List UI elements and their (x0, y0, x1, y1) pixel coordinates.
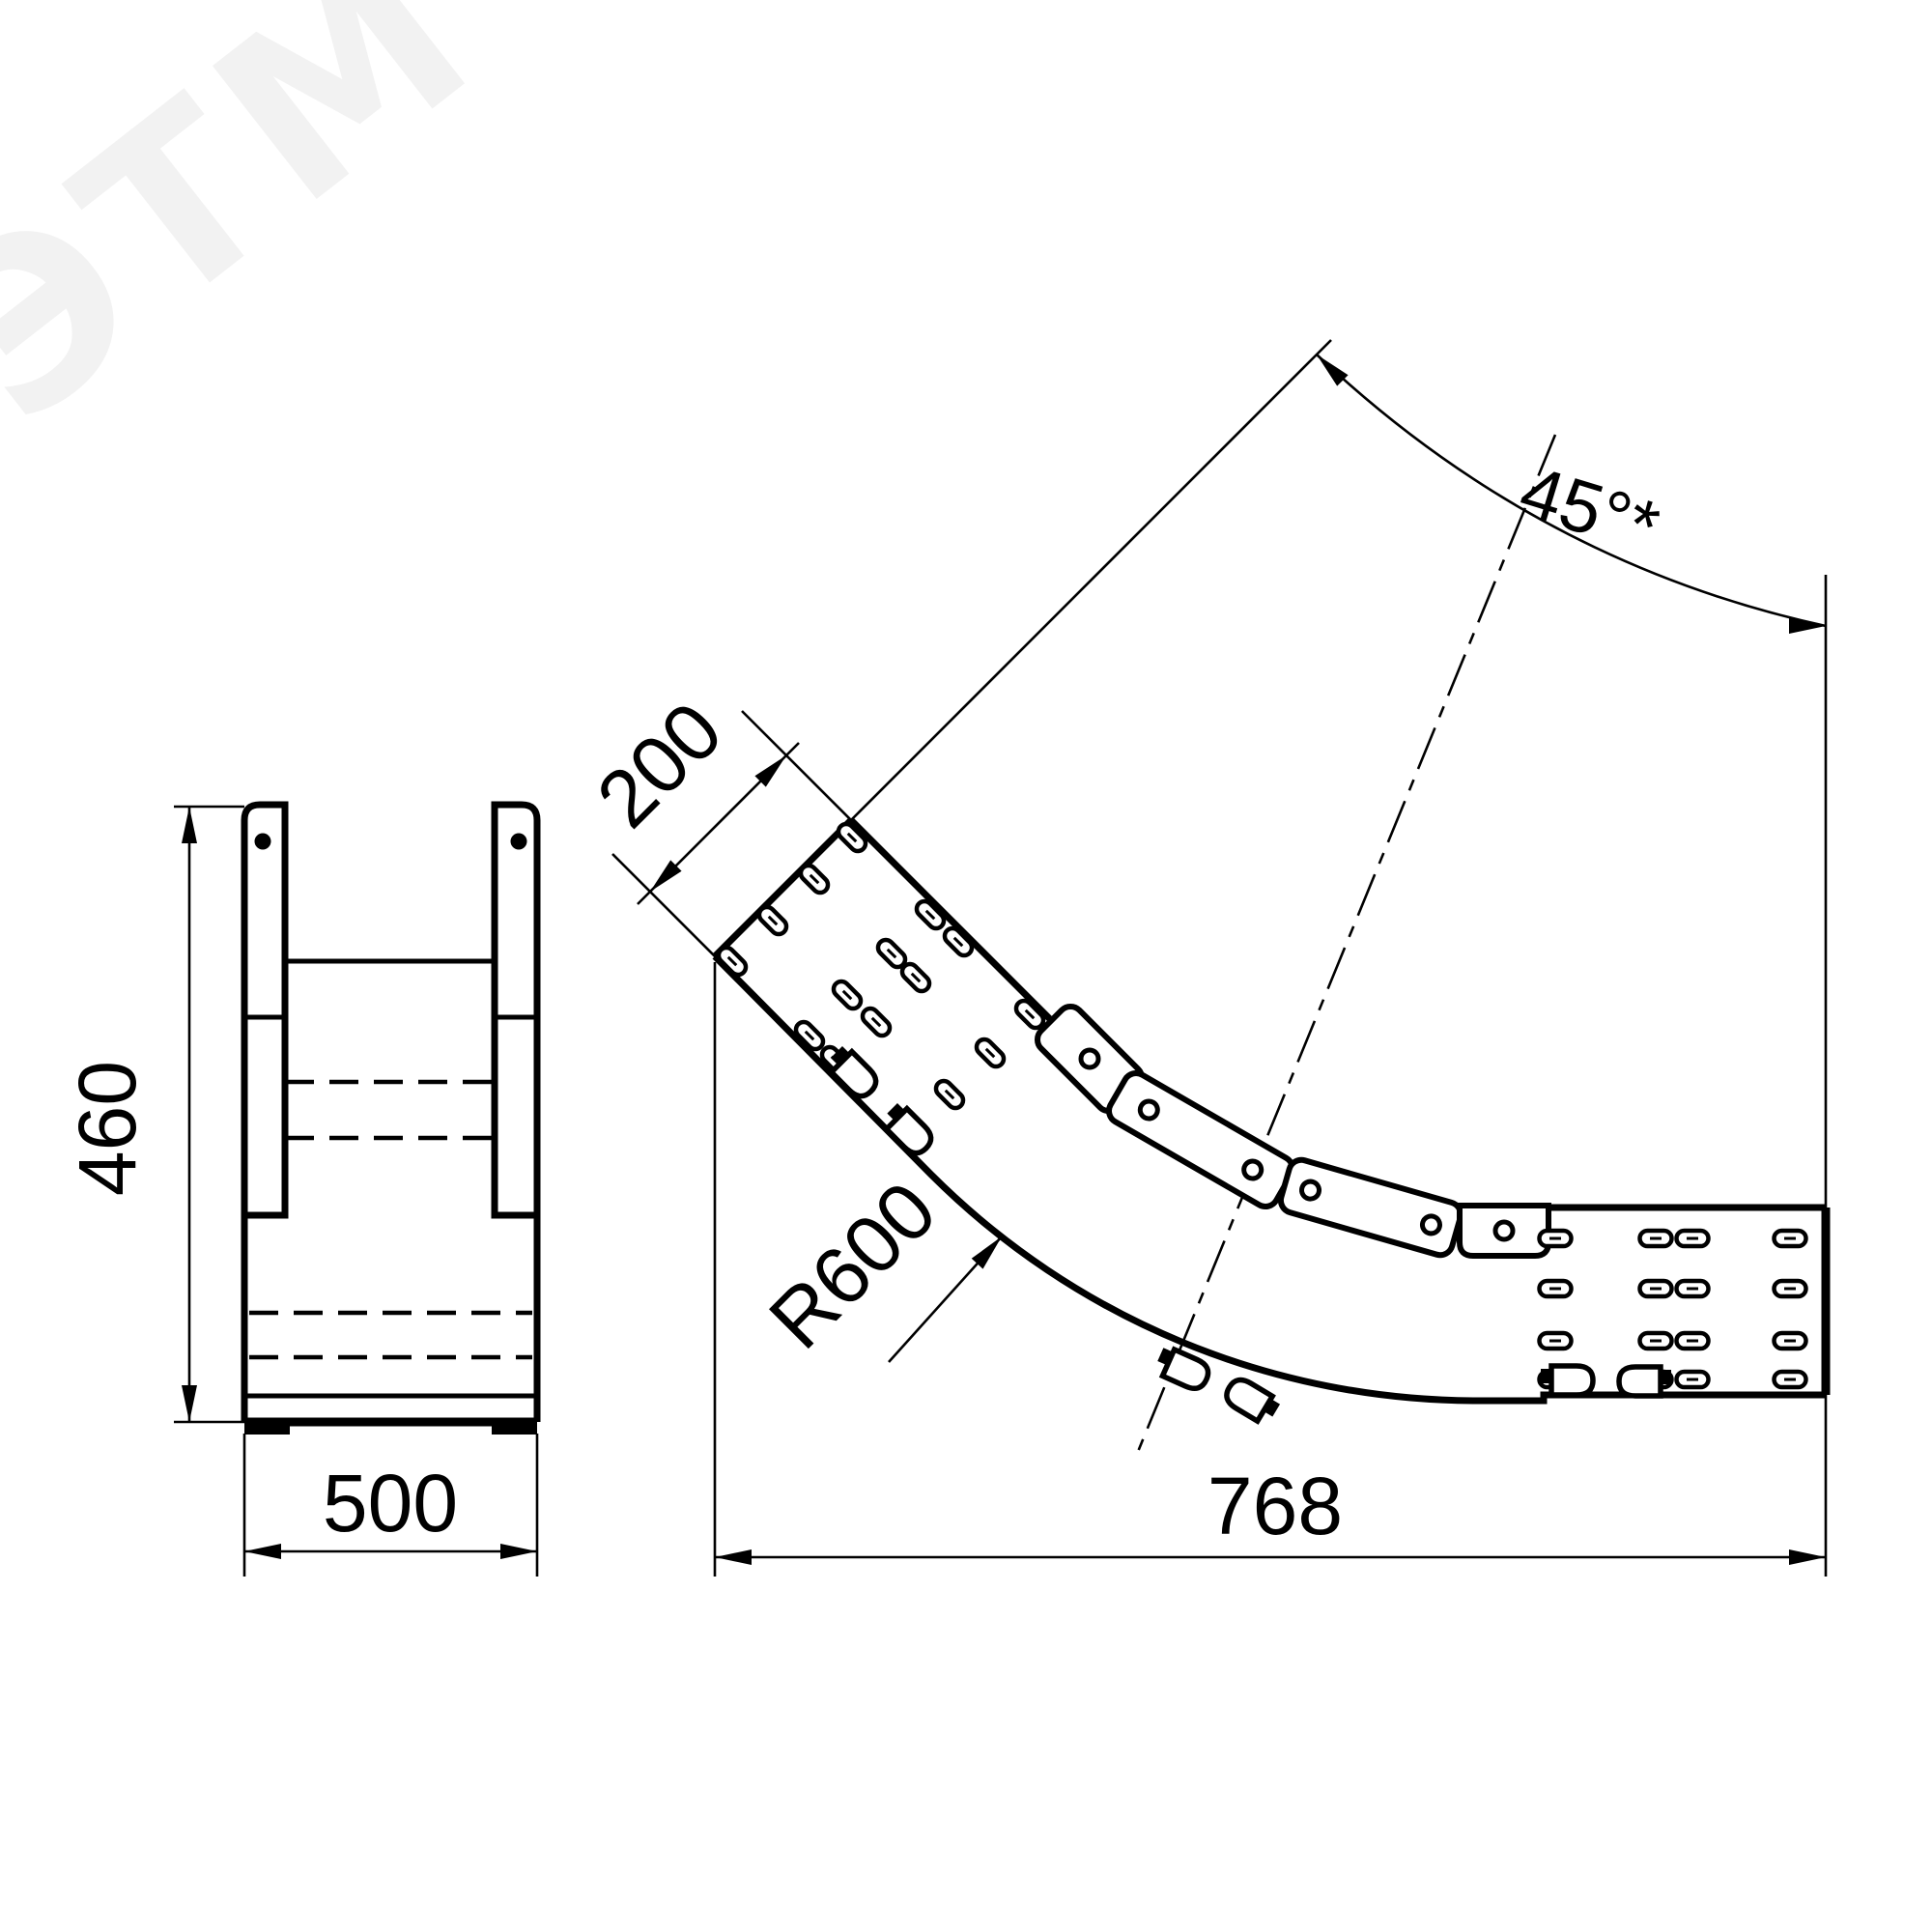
bend-plan-view (715, 435, 1826, 1459)
slot-hole (831, 979, 865, 1012)
right-rail (495, 805, 537, 1215)
dim-height-460: 460 (62, 807, 244, 1422)
arrowhead (500, 1544, 537, 1559)
clamp-body (1162, 1350, 1211, 1393)
slot-hole (1775, 1372, 1806, 1387)
left-rail (244, 805, 285, 1215)
cable-clamp (1222, 1375, 1282, 1427)
slot-hole (860, 1006, 894, 1039)
dim-length-label: 768 (1207, 1461, 1343, 1551)
front-view (244, 805, 537, 1435)
dim-radius-label: R600 (752, 1164, 952, 1365)
dim-angle-45: 45°* (851, 340, 1826, 1207)
watermark-text: ЭТМ (0, 0, 526, 474)
slot-hole (899, 961, 933, 995)
plate-hole (1420, 1214, 1441, 1236)
slot-hole (1540, 1281, 1572, 1296)
extension-line (612, 854, 746, 987)
clamp-body (1551, 1366, 1593, 1395)
plate-outline (1104, 1068, 1296, 1210)
dim-width-label: 500 (323, 1458, 458, 1548)
plate-outline (1278, 1157, 1463, 1259)
right-rail-hole (511, 834, 527, 850)
slot-hole (756, 904, 790, 938)
slot-group-diagonal-arm (716, 821, 1047, 1153)
inner-edge (851, 820, 1826, 1207)
slot-hole (1640, 1281, 1672, 1296)
drawing-page: ЭТМ 460 (0, 0, 1932, 1932)
slot-hole (1013, 998, 1047, 1032)
arm-end-edge (715, 820, 851, 956)
technical-drawing-canvas: ЭТМ 460 (0, 0, 1932, 1932)
slot-hole (793, 1019, 827, 1053)
dim-width-500: 500 (244, 1434, 537, 1577)
watermark: ЭТМ (0, 0, 526, 474)
arrowhead (182, 807, 197, 843)
slot-hole (1640, 1333, 1672, 1349)
slot-hole (836, 821, 869, 855)
slot-hole (1677, 1333, 1709, 1349)
cable-clamp (879, 1101, 936, 1158)
slot-hole (1775, 1281, 1806, 1296)
dim-radius-R600: R600 (752, 1164, 1002, 1365)
slot-hole (914, 898, 948, 932)
slot-hole (1677, 1231, 1709, 1246)
slot-hole (1775, 1231, 1806, 1246)
slot-hole (1677, 1281, 1709, 1296)
slot-hole (1540, 1231, 1572, 1246)
left-foot-tab (244, 1426, 290, 1435)
slot-hole (933, 1078, 967, 1112)
bend-center-line (1135, 435, 1555, 1459)
slot-hole (1540, 1333, 1572, 1349)
angle-leg-line (851, 340, 1331, 820)
slot-hole (942, 925, 976, 959)
arrowhead (182, 1385, 197, 1422)
clamp-body (1619, 1367, 1661, 1396)
plate-hole (1495, 1222, 1513, 1239)
arrowhead (1317, 355, 1349, 386)
arrowhead (244, 1544, 281, 1559)
arrowhead (715, 1549, 752, 1565)
connector-plate (1278, 1157, 1463, 1259)
slot-hole (798, 863, 832, 896)
left-rail-hole (255, 834, 271, 850)
cable-clamp (1541, 1366, 1593, 1395)
dim-height-label: 460 (62, 1061, 153, 1196)
slot-hole (1775, 1333, 1806, 1349)
dim-tray-width-label: 200 (580, 685, 740, 845)
right-foot-tab (492, 1426, 537, 1435)
slot-hole (1677, 1372, 1709, 1387)
dim-angle-label: 45°* (1511, 450, 1668, 570)
arrowhead (1789, 1549, 1826, 1565)
plate-hole (1299, 1179, 1321, 1201)
slot-hole (974, 1037, 1008, 1070)
clamp-body (1222, 1375, 1272, 1421)
connector-plate (1460, 1206, 1548, 1256)
connector-plate (1104, 1068, 1296, 1210)
slot-hole (1640, 1231, 1672, 1246)
